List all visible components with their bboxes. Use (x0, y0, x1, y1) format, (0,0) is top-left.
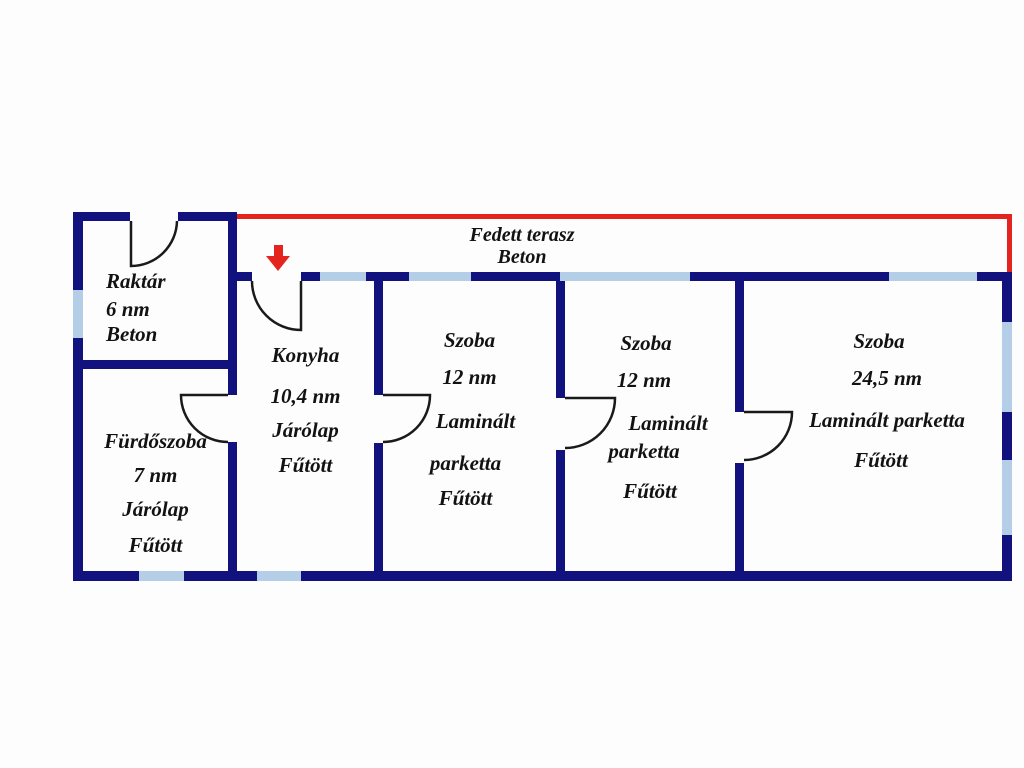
room-raktar: Raktár 6 nm Beton (83, 221, 228, 360)
room-floor: Beton (106, 322, 157, 346)
terrace-floor: Beton (397, 246, 647, 268)
room-area: 24,5 nm (768, 366, 1006, 390)
terrace-outline-right (1007, 214, 1012, 274)
wall-segment (735, 272, 744, 412)
window-segment (889, 272, 977, 281)
wall-segment (735, 463, 744, 581)
room-heating: Fűtött (237, 453, 374, 477)
wall-segment (228, 442, 237, 581)
room-floor-line1: Laminált (389, 409, 562, 433)
room-name: Szoba (383, 328, 556, 352)
room-furdoszoba: Fürdőszoba 7 nm Járólap Fűtött (83, 369, 228, 571)
wall-segment (374, 272, 383, 395)
room-szoba-2: Szoba 12 nm Laminált parketta Fűtött (565, 281, 735, 571)
window-segment (73, 290, 83, 338)
room-floor: Járólap (237, 418, 374, 442)
window-segment (257, 571, 301, 581)
room-name: Szoba (760, 329, 998, 353)
room-szoba-1: Szoba 12 nm Laminált parketta Fűtött (383, 281, 556, 571)
floor-plan: Fedett terasz Beton Raktár 6 nm Beton Fü… (0, 0, 1024, 768)
room-szoba-3: Szoba 24,5 nm Laminált parketta Fűtött (744, 281, 1002, 571)
room-area: 6 nm (106, 297, 150, 321)
room-heating: Fűtött (379, 486, 552, 510)
wall-segment (237, 272, 252, 281)
room-floor-line2: parketta (559, 439, 729, 463)
room-floor: Laminált parketta (768, 408, 1006, 432)
room-floor-line1: Laminált (583, 411, 753, 435)
room-konyha: Konyha 10,4 nm Járólap Fűtött (237, 281, 374, 571)
floor-plan-page: Fedett terasz Beton Raktár 6 nm Beton Fü… (0, 0, 1024, 768)
room-area: 10,4 nm (237, 384, 374, 408)
wall-segment (73, 212, 130, 221)
terrace-outline-top (232, 214, 1012, 219)
wall-segment (73, 571, 1012, 581)
room-area: 12 nm (559, 368, 729, 392)
window-segment (409, 272, 471, 281)
wall-segment (73, 212, 83, 581)
window-segment (139, 571, 184, 581)
window-segment (320, 272, 366, 281)
room-area: 12 nm (383, 365, 556, 389)
room-name: Fürdőszoba (83, 429, 228, 453)
window-segment (560, 272, 690, 281)
room-name: Konyha (237, 343, 374, 367)
room-heating: Fűtött (762, 448, 1000, 472)
terrace-name: Fedett terasz (397, 224, 647, 246)
room-heating: Fűtött (83, 533, 228, 557)
entrance-arrow-icon (266, 256, 290, 271)
room-area: 7 nm (83, 463, 228, 487)
room-name: Raktár (106, 269, 166, 293)
room-floor: Járólap (83, 497, 228, 521)
room-name: Szoba (561, 331, 731, 355)
room-floor-line2: parketta (379, 451, 552, 475)
wall-segment (73, 360, 237, 369)
wall-segment (556, 450, 565, 581)
room-heating: Fűtött (565, 479, 735, 503)
window-segment (1002, 460, 1012, 535)
